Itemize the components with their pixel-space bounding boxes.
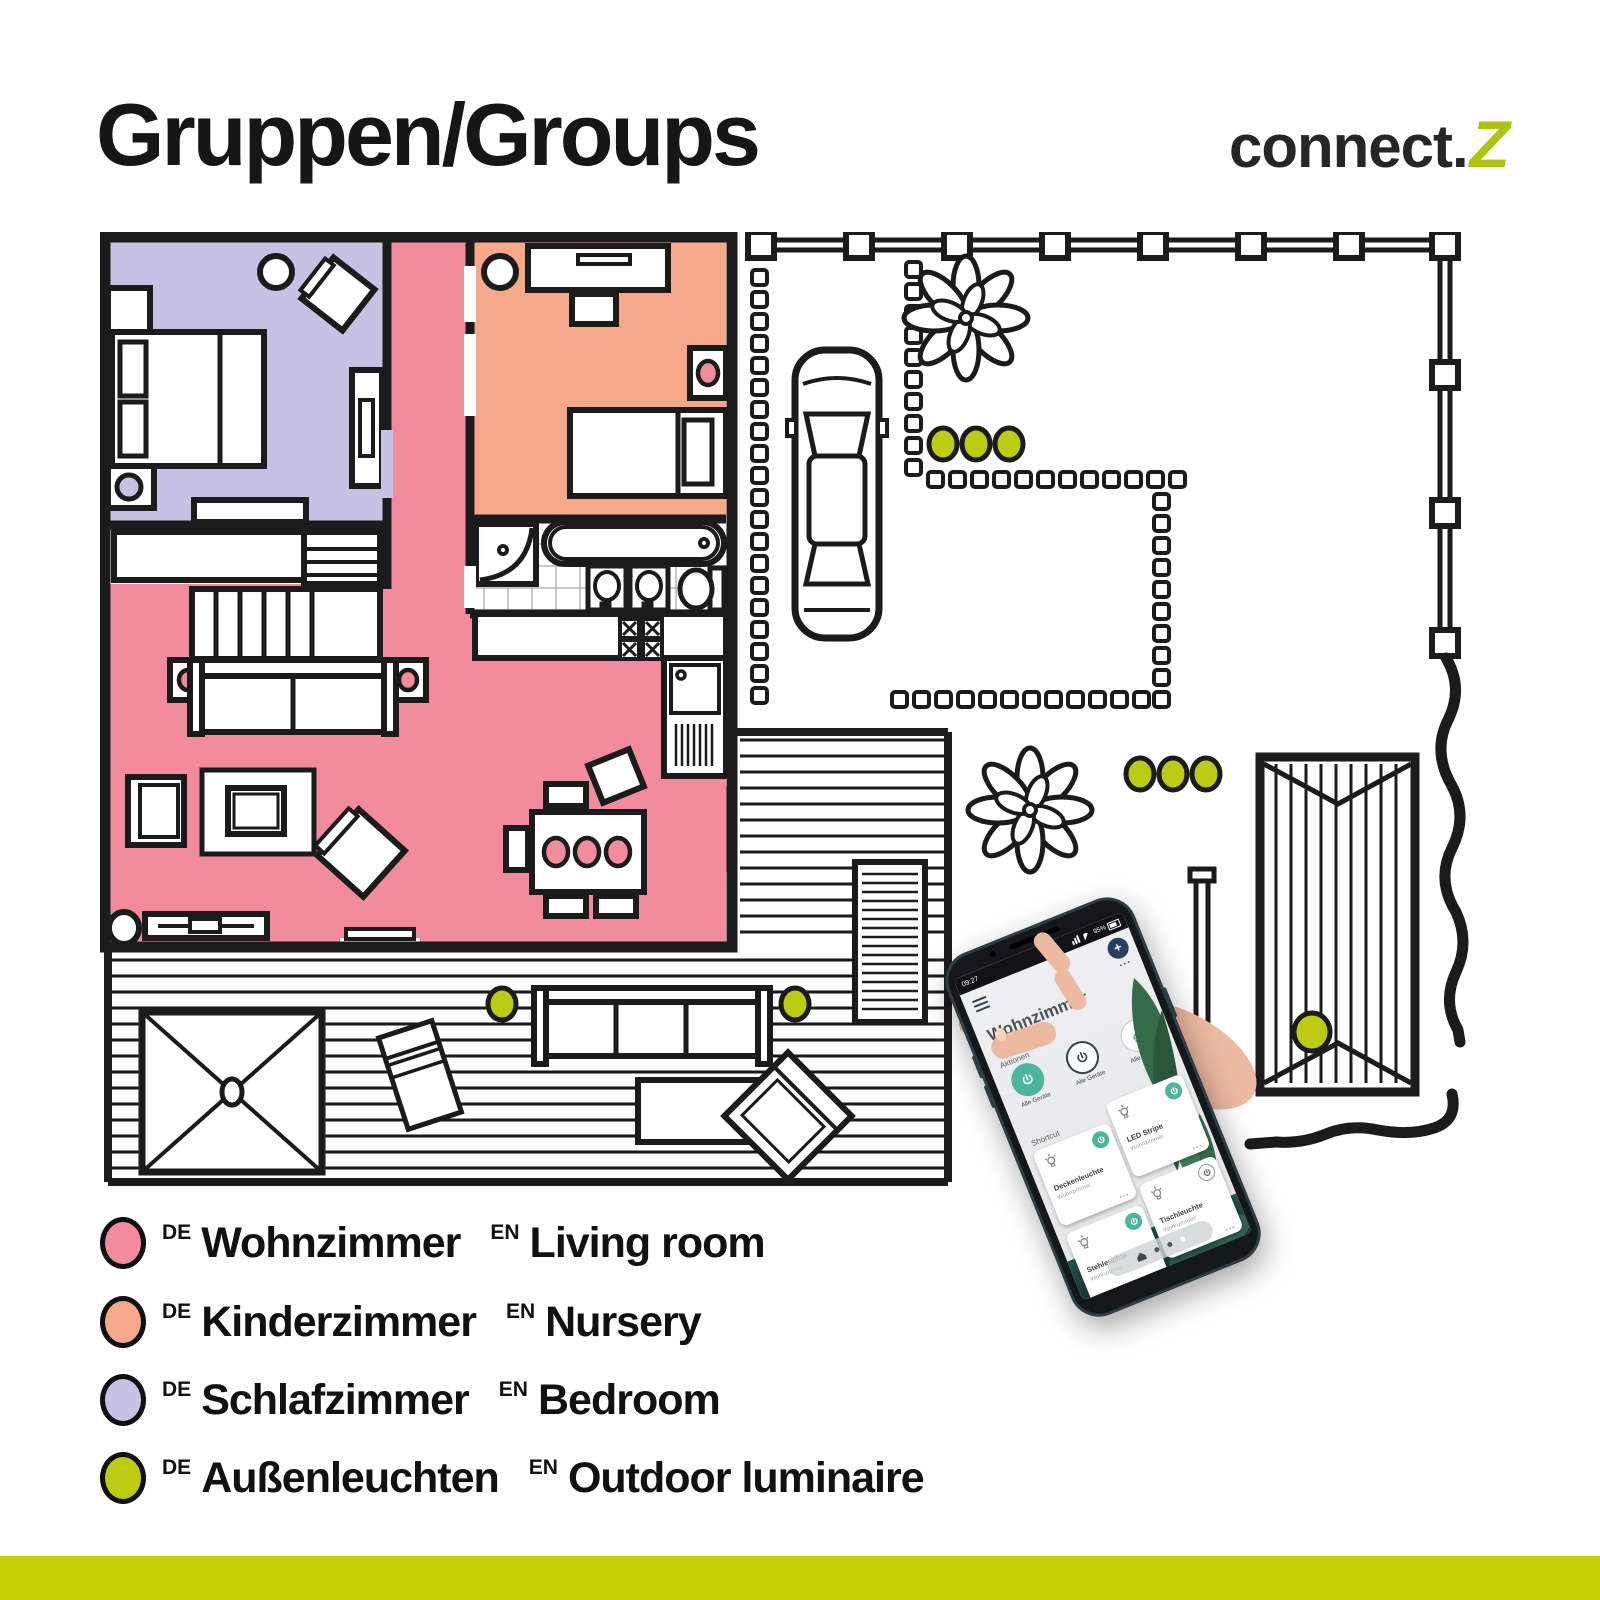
tile-power-button[interactable] <box>1196 1161 1218 1183</box>
lang-tag: EN <box>506 1300 535 1324</box>
brand-z: Z <box>1470 106 1510 182</box>
page-dot[interactable] <box>1166 1241 1173 1248</box>
tile-power-button[interactable] <box>1163 1080 1185 1102</box>
battery-icon <box>1106 918 1121 930</box>
legend-name-en: Bedroom <box>538 1376 720 1425</box>
legend-name-de: Schlafzimmer <box>201 1376 469 1425</box>
lang-tag: DE <box>162 1378 191 1402</box>
page-title: Gruppen/Groups <box>96 84 758 186</box>
bulb-icon <box>1041 1151 1062 1172</box>
lang-tag: DE <box>162 1456 191 1480</box>
hall-wardrobe <box>114 532 380 584</box>
lang-tag: DE <box>162 1221 191 1245</box>
legend-name-en: Nursery <box>545 1298 701 1347</box>
legend-row-nursery: DE Kinderzimmer EN Nursery <box>100 1297 701 1347</box>
lang-tag: EN <box>529 1456 558 1480</box>
battery-percent: 95% <box>1093 924 1108 935</box>
bulb-icon <box>1114 1102 1135 1123</box>
garden-plant-1 <box>904 256 1028 380</box>
power-icon <box>1073 1048 1093 1068</box>
tile-power-button[interactable] <box>1090 1129 1112 1151</box>
car <box>787 350 887 638</box>
tile-more[interactable]: ... <box>1117 1187 1130 1200</box>
brand-logo: connect. Z <box>1229 106 1510 182</box>
stove <box>620 619 662 659</box>
legend-name-en: Outdoor luminaire <box>568 1454 924 1503</box>
legend-row-outdoor: DE Außenleuchten EN Outdoor luminaire <box>100 1453 924 1503</box>
bulb-icon <box>1147 1183 1168 1204</box>
lang-tag: EN <box>499 1378 528 1402</box>
tile-power-button[interactable] <box>1123 1210 1145 1232</box>
legend-row-bedroom: DE Schlafzimmer EN Bedroom <box>100 1375 720 1425</box>
signal-wifi-icons <box>1070 929 1093 945</box>
lang-tag: DE <box>162 1300 191 1324</box>
staircase <box>192 589 380 659</box>
legend-name-de: Wohnzimmer <box>201 1219 460 1268</box>
brand-color-bar <box>0 1556 1600 1600</box>
bulb-icon <box>1074 1232 1095 1253</box>
legend-name-de: Kinderzimmer <box>201 1298 476 1347</box>
legend-row-living: DE Wohnzimmer EN Living room <box>100 1218 765 1268</box>
home-icon <box>1134 1250 1148 1263</box>
app-title: Wohnzimmer <box>985 988 1091 1046</box>
lang-tag: EN <box>490 1221 519 1245</box>
legend-swatch-bedroom <box>100 1374 146 1426</box>
legend-swatch-living <box>100 1217 146 1269</box>
clock: 09:27 <box>961 976 980 989</box>
legend-swatch-outdoor <box>100 1452 146 1504</box>
tile-more[interactable]: ... <box>1223 1220 1236 1233</box>
legend-swatch-nursery <box>100 1296 146 1348</box>
garden-plant-2 <box>968 748 1092 872</box>
legend-name-de: Außenleuchten <box>201 1454 499 1503</box>
page-dot-active[interactable] <box>1179 1236 1186 1243</box>
menu-icon[interactable] <box>972 996 991 1015</box>
tile-more[interactable]: ... <box>1190 1138 1203 1151</box>
brand-name: connect. <box>1229 112 1468 181</box>
page-dot[interactable] <box>1153 1247 1160 1254</box>
front-camera-icon <box>989 950 997 958</box>
power-icon <box>1018 1070 1038 1090</box>
legend-name-en: Living room <box>530 1219 765 1268</box>
tile-more[interactable]: ... <box>1150 1269 1163 1282</box>
